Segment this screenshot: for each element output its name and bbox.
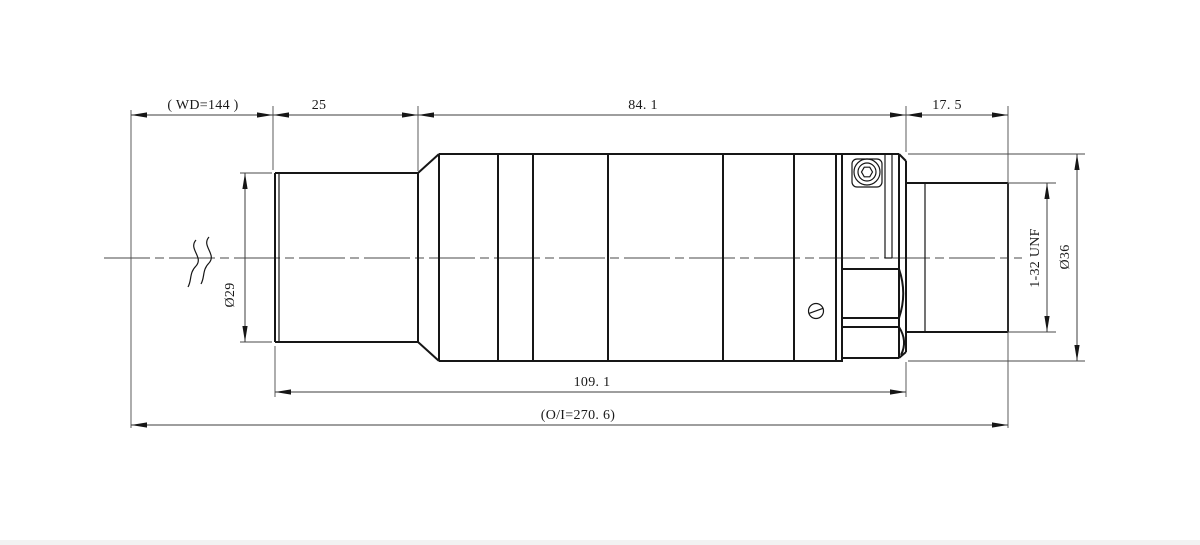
hex-nut-flats: [843, 269, 904, 358]
dimension-object-image: (O/I=270. 6): [131, 408, 1008, 425]
dimension-front-length: 25: [273, 98, 418, 115]
dimension-front-body-length: 109. 1: [275, 375, 906, 392]
technical-drawing: ( WD=144 ) 25 84. 1 17. 5 Ø29 1-32 UNF Ø…: [0, 0, 1200, 540]
clamp-section: [843, 154, 906, 358]
dim-body-diameter-label: Ø36: [1058, 244, 1073, 269]
dim-object-image-label: (O/I=270. 6): [541, 408, 616, 423]
dim-rear-length-label: 17. 5: [932, 98, 962, 113]
dim-front-body-length-label: 109. 1: [574, 375, 611, 390]
dimension-wd: ( WD=144 ): [131, 98, 273, 115]
socket-head-screw: [854, 159, 880, 185]
dim-body-length-label: 84. 1: [628, 98, 658, 113]
dim-thread-label: 1-32 UNF: [1028, 228, 1043, 288]
set-screw: [809, 304, 824, 319]
technical-drawing-page: ( WD=144 ) 25 84. 1 17. 5 Ø29 1-32 UNF Ø…: [0, 0, 1200, 540]
dimension-body-length: 84. 1: [418, 98, 906, 115]
dimension-rear-length: 17. 5: [906, 98, 1008, 115]
break-symbol: [188, 237, 211, 287]
dim-front-diameter-label: Ø29: [223, 282, 238, 307]
dim-front-length-label: 25: [312, 98, 327, 113]
clamp-slot: [885, 154, 892, 258]
dimension-thread: 1-32 UNF: [1028, 183, 1047, 332]
dimension-body-diameter: Ø36: [1058, 154, 1077, 361]
dim-wd-label: ( WD=144 ): [167, 98, 238, 113]
